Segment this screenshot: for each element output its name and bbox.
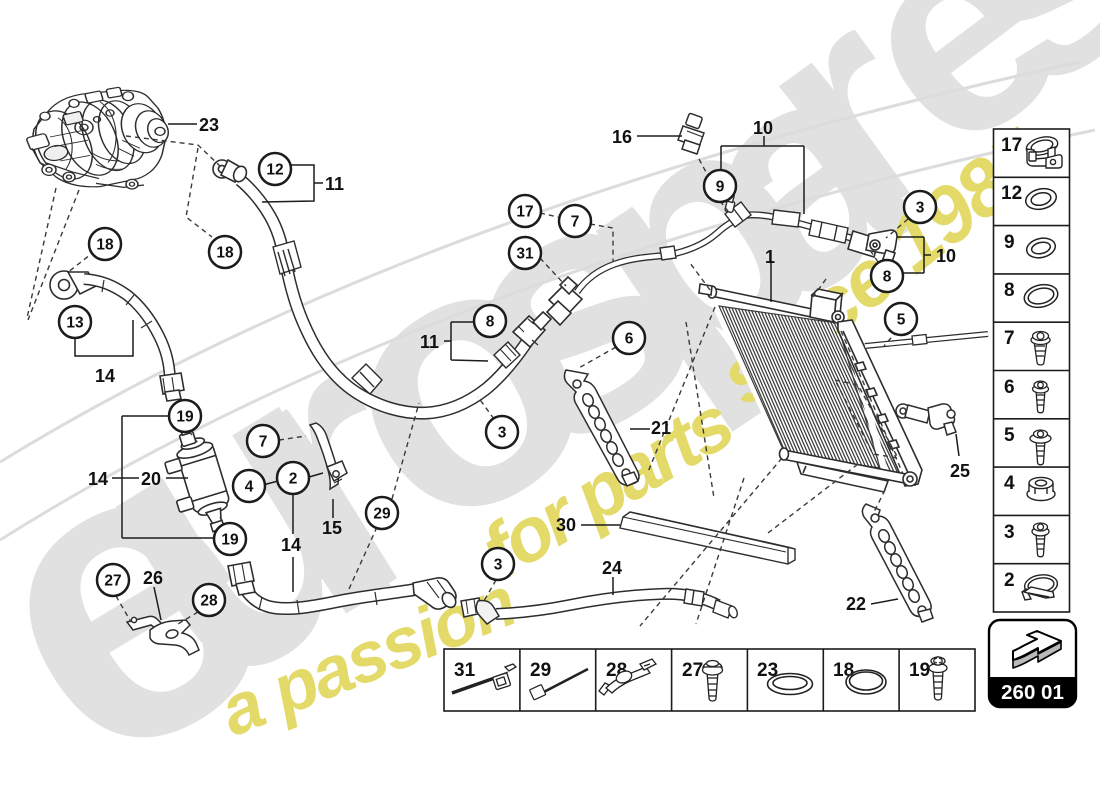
svg-text:31: 31: [516, 246, 534, 263]
svg-text:10: 10: [753, 118, 773, 138]
svg-text:14: 14: [88, 469, 108, 489]
svg-text:12: 12: [266, 162, 283, 179]
svg-text:16: 16: [612, 127, 632, 147]
svg-text:2: 2: [289, 471, 298, 488]
svg-text:19: 19: [176, 409, 194, 426]
svg-text:29: 29: [530, 660, 551, 681]
svg-text:9: 9: [1004, 232, 1015, 253]
svg-text:17: 17: [1001, 135, 1022, 156]
svg-text:20: 20: [141, 469, 161, 489]
svg-text:8: 8: [1004, 280, 1015, 301]
svg-text:7: 7: [571, 214, 580, 231]
svg-text:11: 11: [420, 332, 439, 352]
svg-text:30: 30: [556, 515, 576, 535]
svg-text:18: 18: [216, 245, 234, 262]
svg-text:5: 5: [897, 312, 906, 329]
svg-text:31: 31: [454, 660, 476, 681]
svg-text:7: 7: [259, 434, 268, 451]
svg-text:25: 25: [950, 461, 970, 481]
svg-text:260 01: 260 01: [1001, 681, 1064, 704]
svg-text:21: 21: [651, 418, 671, 438]
svg-text:7: 7: [1004, 328, 1015, 349]
svg-text:23: 23: [199, 115, 219, 135]
svg-text:12: 12: [1001, 183, 1022, 204]
svg-text:15: 15: [322, 518, 342, 538]
svg-text:18: 18: [96, 237, 114, 254]
svg-text:3: 3: [494, 557, 503, 574]
svg-text:14: 14: [95, 366, 115, 386]
svg-text:3: 3: [916, 200, 925, 217]
svg-text:23: 23: [757, 660, 778, 681]
svg-text:4: 4: [1004, 473, 1015, 494]
svg-text:19: 19: [909, 660, 930, 681]
svg-text:5: 5: [1004, 425, 1015, 446]
svg-text:10: 10: [936, 246, 956, 266]
svg-text:27: 27: [682, 660, 703, 681]
svg-text:22: 22: [846, 594, 866, 614]
svg-text:28: 28: [200, 593, 218, 610]
svg-text:13: 13: [66, 315, 84, 332]
svg-text:1: 1: [765, 247, 775, 267]
svg-text:8: 8: [486, 314, 495, 331]
svg-text:6: 6: [1004, 377, 1015, 398]
svg-text:8: 8: [883, 269, 892, 286]
svg-text:14: 14: [281, 535, 301, 555]
svg-text:24: 24: [602, 558, 622, 578]
svg-text:2: 2: [1004, 570, 1015, 591]
svg-text:29: 29: [373, 506, 391, 523]
svg-text:19: 19: [221, 532, 239, 549]
svg-text:9: 9: [716, 179, 725, 196]
svg-text:3: 3: [498, 425, 507, 442]
svg-text:3: 3: [1004, 522, 1015, 543]
svg-text:6: 6: [625, 331, 634, 348]
svg-text:11: 11: [325, 174, 344, 194]
svg-text:4: 4: [245, 479, 254, 496]
svg-text:17: 17: [516, 204, 533, 221]
svg-text:26: 26: [143, 568, 163, 588]
svg-text:27: 27: [104, 573, 121, 590]
